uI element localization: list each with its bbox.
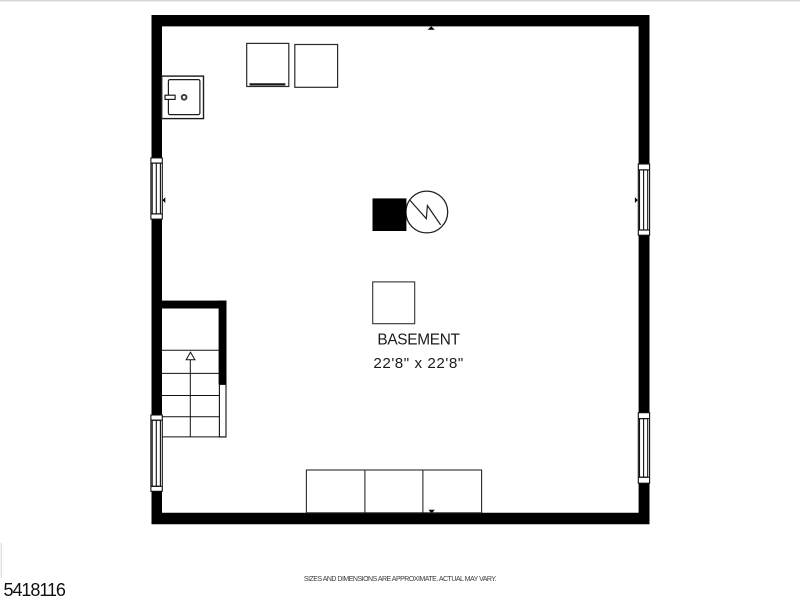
svg-text:22'8" x 22'8": 22'8" x 22'8" [373, 355, 463, 372]
svg-text:BASEMENT: BASEMENT [377, 332, 460, 349]
svg-text:5418116: 5418116 [4, 580, 66, 600]
svg-text:SIZES AND DIMENSIONS ARE APPRO: SIZES AND DIMENSIONS ARE APPROXIMATE. AC… [304, 576, 497, 583]
